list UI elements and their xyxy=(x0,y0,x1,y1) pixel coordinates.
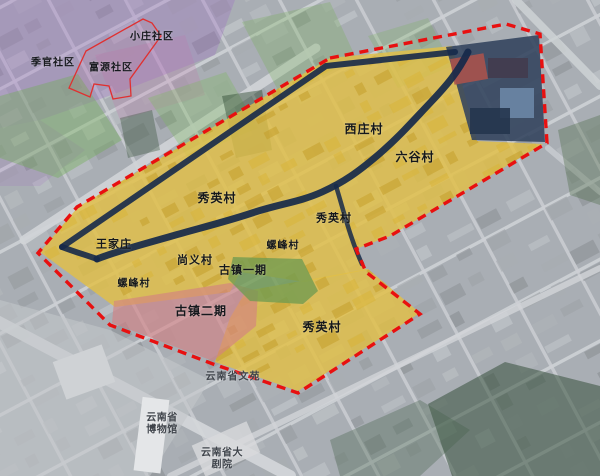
map-screenshot: 季官社区 富源社区 小庄社区 西庄村 六谷村 秀英村 秀英村 王家庄 尚义村 螺… xyxy=(0,0,600,476)
satellite-map xyxy=(0,0,600,476)
